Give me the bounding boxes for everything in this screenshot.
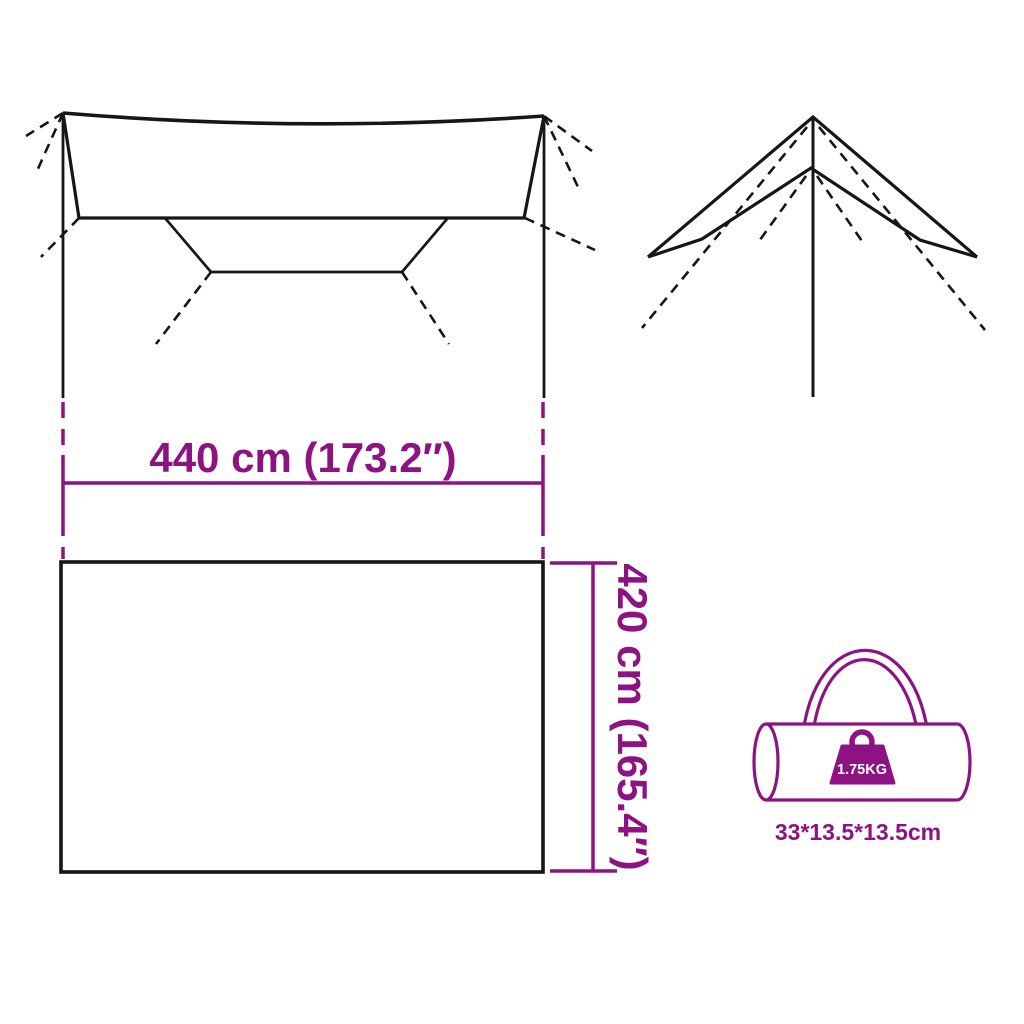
guy-rope	[41, 218, 79, 257]
guy-rope	[26, 113, 63, 136]
tarp-footprint-rectangle	[61, 562, 543, 872]
guy-ropes-dashed	[26, 113, 595, 344]
bag-end-cap	[754, 724, 778, 800]
guy-rope	[544, 116, 578, 187]
depth-dimension: 420 cm (165.4″)	[550, 563, 656, 871]
guy-rope	[525, 218, 595, 250]
bag-size-label: 33*13.5*13.5cm	[775, 819, 941, 845]
product-diagram: 440 cm (173.2″) 420 cm (165.4″) 1.75KG	[0, 0, 1024, 1024]
guy-rope	[156, 272, 211, 344]
tarp-dimension-diagram: 440 cm (173.2″) 420 cm (165.4″) 1.75KG	[0, 0, 1024, 1024]
tarp-inner-guyout-lines	[165, 218, 447, 272]
tarp-outline	[63, 113, 544, 218]
carry-bag-icon: 1.75KG 33*13.5*13.5cm	[754, 650, 970, 845]
width-dimension: 440 cm (173.2″)	[63, 402, 543, 559]
guy-rope	[402, 272, 449, 344]
depth-dimension-label: 420 cm (165.4″)	[609, 563, 656, 870]
tarp-pitched-view	[642, 117, 985, 397]
weight-label: 1.75KG	[837, 762, 887, 778]
tarp-top-view	[26, 113, 595, 398]
tarp-top-edge	[63, 113, 544, 124]
guy-rope	[37, 113, 63, 171]
guy-rope	[642, 127, 807, 328]
width-dimension-label: 440 cm (173.2″)	[149, 434, 456, 481]
